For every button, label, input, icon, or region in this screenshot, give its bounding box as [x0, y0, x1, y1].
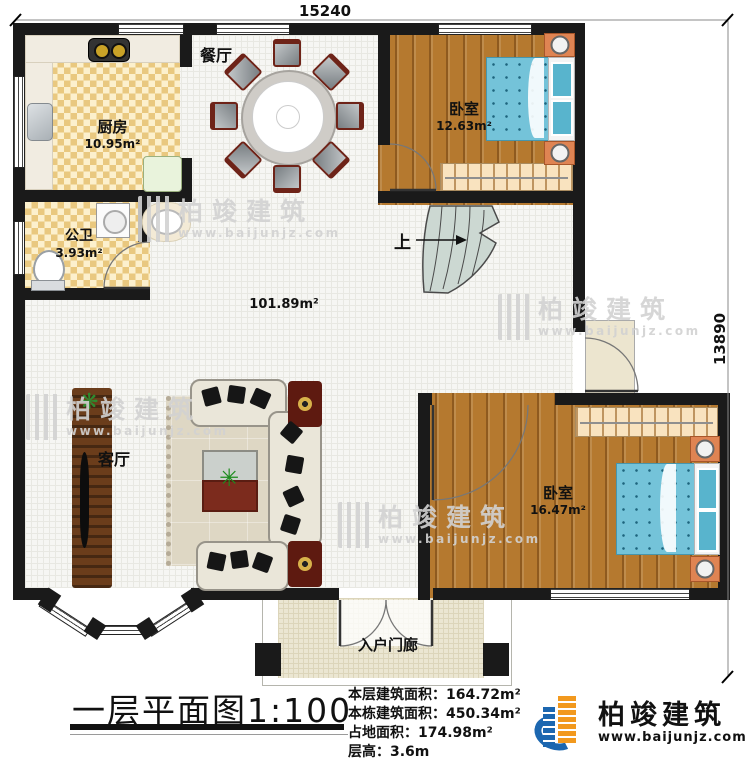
brand-name: 柏竣建筑	[598, 701, 747, 731]
room-label-porch: 入户门廊	[333, 636, 443, 655]
room-name: 客厅	[84, 450, 144, 470]
stairs	[423, 206, 499, 293]
stat-value: 164.72m²	[446, 686, 521, 705]
brand-site: www.baijunjz.com	[598, 730, 747, 745]
room-area: 101.89m²	[228, 297, 340, 313]
room-label-living: 客厅	[84, 450, 144, 470]
room-name: 厨房	[70, 118, 155, 137]
dimension-right: 13890	[711, 309, 729, 369]
room-name: 公卫	[43, 228, 115, 246]
room-name: 餐厅	[186, 46, 246, 66]
brand-block: 柏竣建筑 www.baijunjz.com	[534, 692, 747, 754]
plan-linework	[0, 0, 750, 772]
hall-area-label: 101.89m²	[228, 297, 340, 313]
stairs-up-label: 上	[394, 228, 411, 253]
door-arc	[585, 338, 638, 391]
floor-plan-canvas: 柏竣建筑 www.baijunjz.com 柏竣建筑 www.baijunjz.…	[0, 0, 750, 772]
title-underline-thin	[70, 734, 348, 735]
stat-value: 3.6m	[390, 743, 429, 762]
title-underline	[70, 724, 344, 730]
room-label-bedroom2: 卧室 16.47m²	[518, 484, 598, 518]
room-name: 入户门廊	[333, 636, 443, 655]
room-label-dining: 餐厅	[186, 46, 246, 66]
stat-value: 174.98m²	[418, 724, 493, 743]
stat-label: 层高：	[348, 743, 390, 762]
room-area: 10.95m²	[70, 137, 155, 152]
room-area: 12.63m²	[424, 119, 504, 134]
stat-label: 本栋建筑面积：	[348, 705, 446, 724]
room-label-bathroom: 公卫 3.93m²	[43, 228, 115, 261]
brand-logo-icon	[534, 692, 588, 754]
room-name: 卧室	[518, 484, 598, 503]
stat-row: 本层建筑面积：164.72m²	[348, 686, 521, 705]
door-arc	[390, 144, 436, 190]
stat-label: 本层建筑面积：	[348, 686, 446, 705]
dimension-top: 15240	[280, 2, 370, 20]
stats-block: 本层建筑面积：164.72m² 本栋建筑面积：450.34m² 占地面积：174…	[348, 686, 521, 762]
room-label-kitchen: 厨房 10.95m²	[70, 118, 155, 152]
door-arc	[433, 405, 528, 500]
room-label-bedroom1: 卧室 12.63m²	[424, 100, 504, 134]
stat-label: 占地面积：	[348, 724, 418, 743]
room-area: 3.93m²	[43, 246, 115, 261]
room-area: 16.47m²	[518, 503, 598, 518]
stat-row: 本栋建筑面积：450.34m²	[348, 705, 521, 724]
room-name: 卧室	[424, 100, 504, 119]
stat-row: 占地面积：174.98m²	[348, 724, 521, 743]
stat-value: 450.34m²	[446, 705, 521, 724]
stat-row: 层高：3.6m	[348, 743, 521, 762]
